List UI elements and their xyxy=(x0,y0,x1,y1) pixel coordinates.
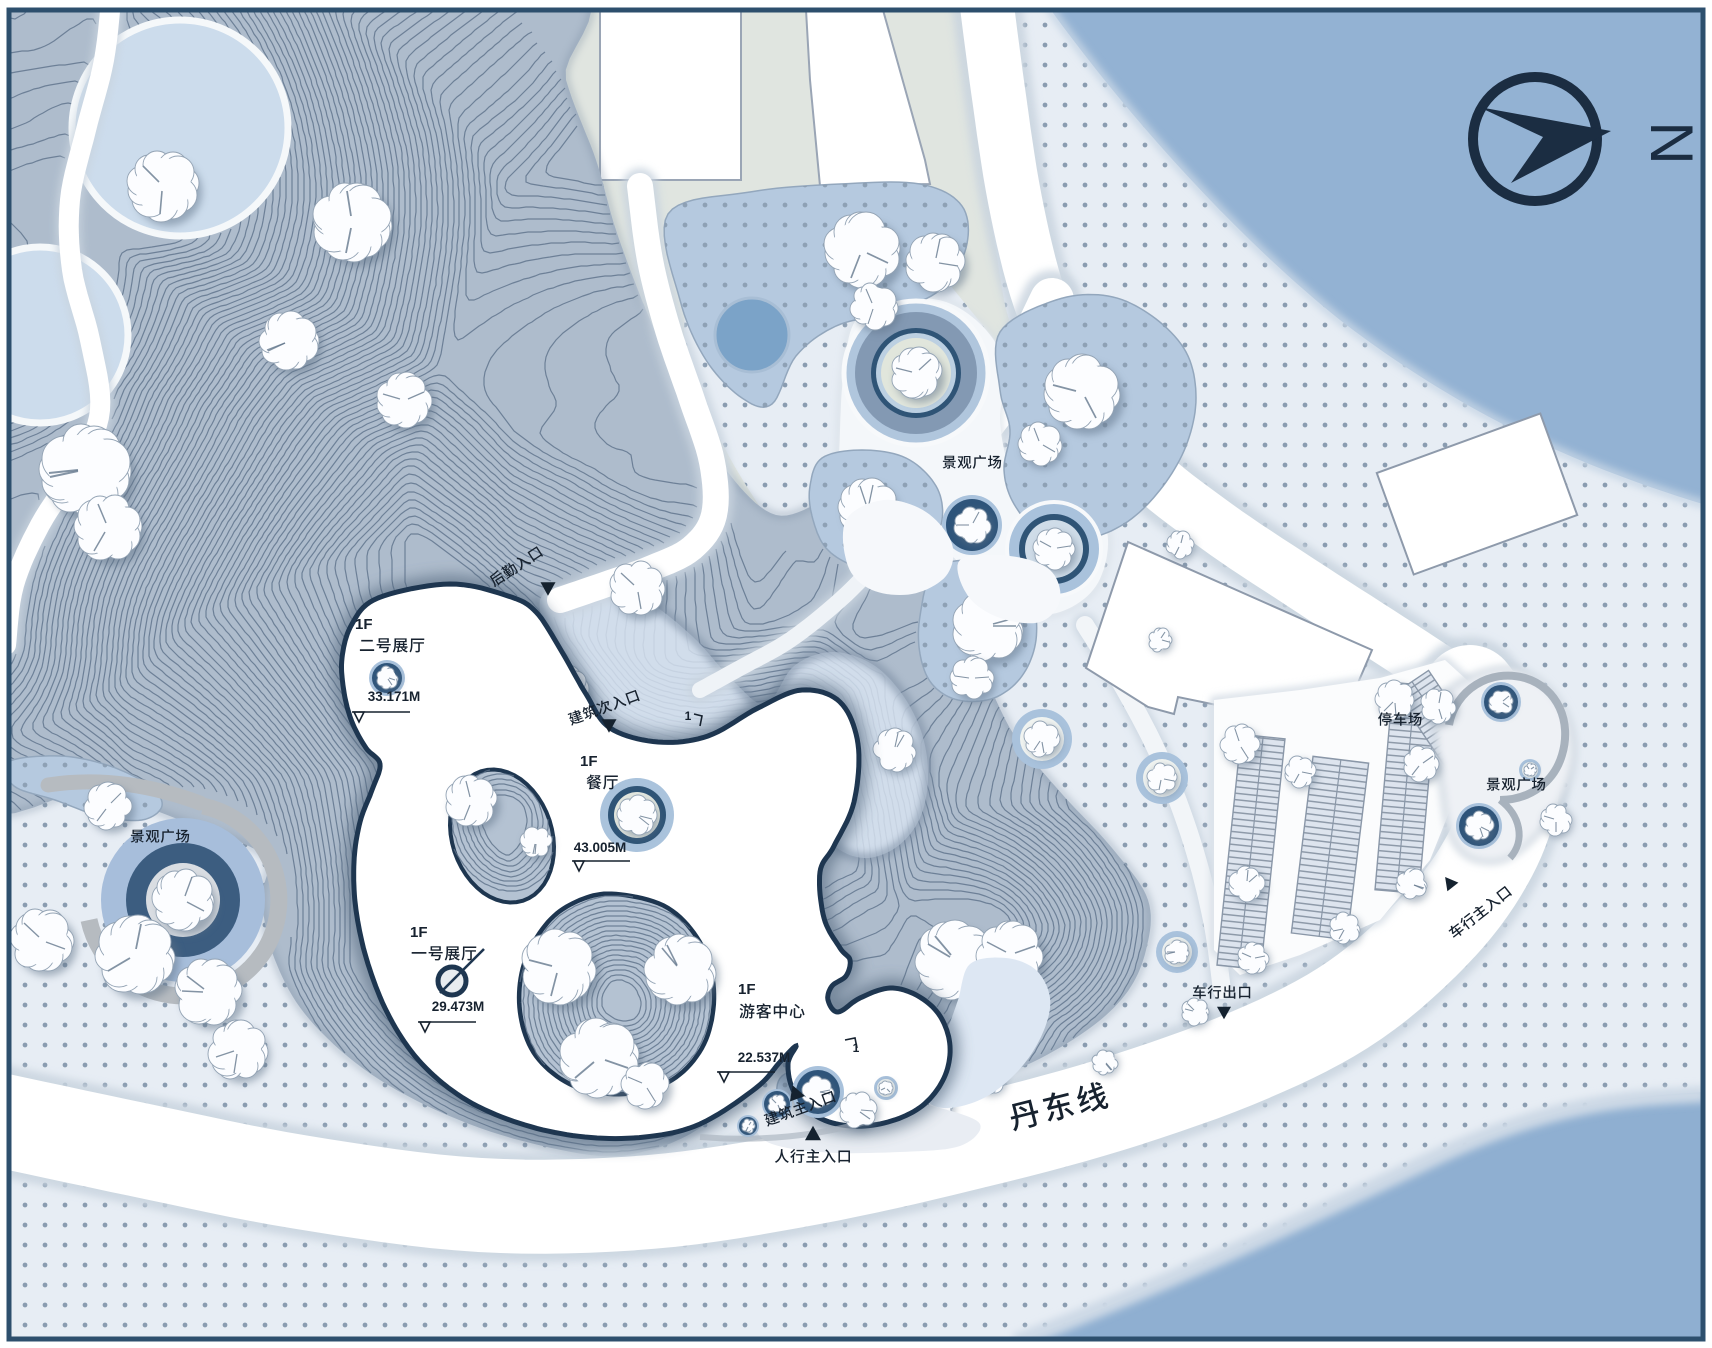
svg-text:1F: 1F xyxy=(355,616,373,633)
svg-text:1: 1 xyxy=(853,1041,860,1055)
svg-text:43.005M: 43.005M xyxy=(574,840,627,855)
svg-text:33.171M: 33.171M xyxy=(368,689,421,704)
svg-text:1F: 1F xyxy=(580,753,598,770)
svg-text:22.537M: 22.537M xyxy=(738,1050,791,1065)
svg-text:29.473M: 29.473M xyxy=(432,999,485,1014)
svg-text:1F: 1F xyxy=(410,924,428,941)
svg-text:N: N xyxy=(1638,121,1705,164)
svg-text:1F: 1F xyxy=(738,981,756,998)
svg-text:1: 1 xyxy=(685,709,692,723)
